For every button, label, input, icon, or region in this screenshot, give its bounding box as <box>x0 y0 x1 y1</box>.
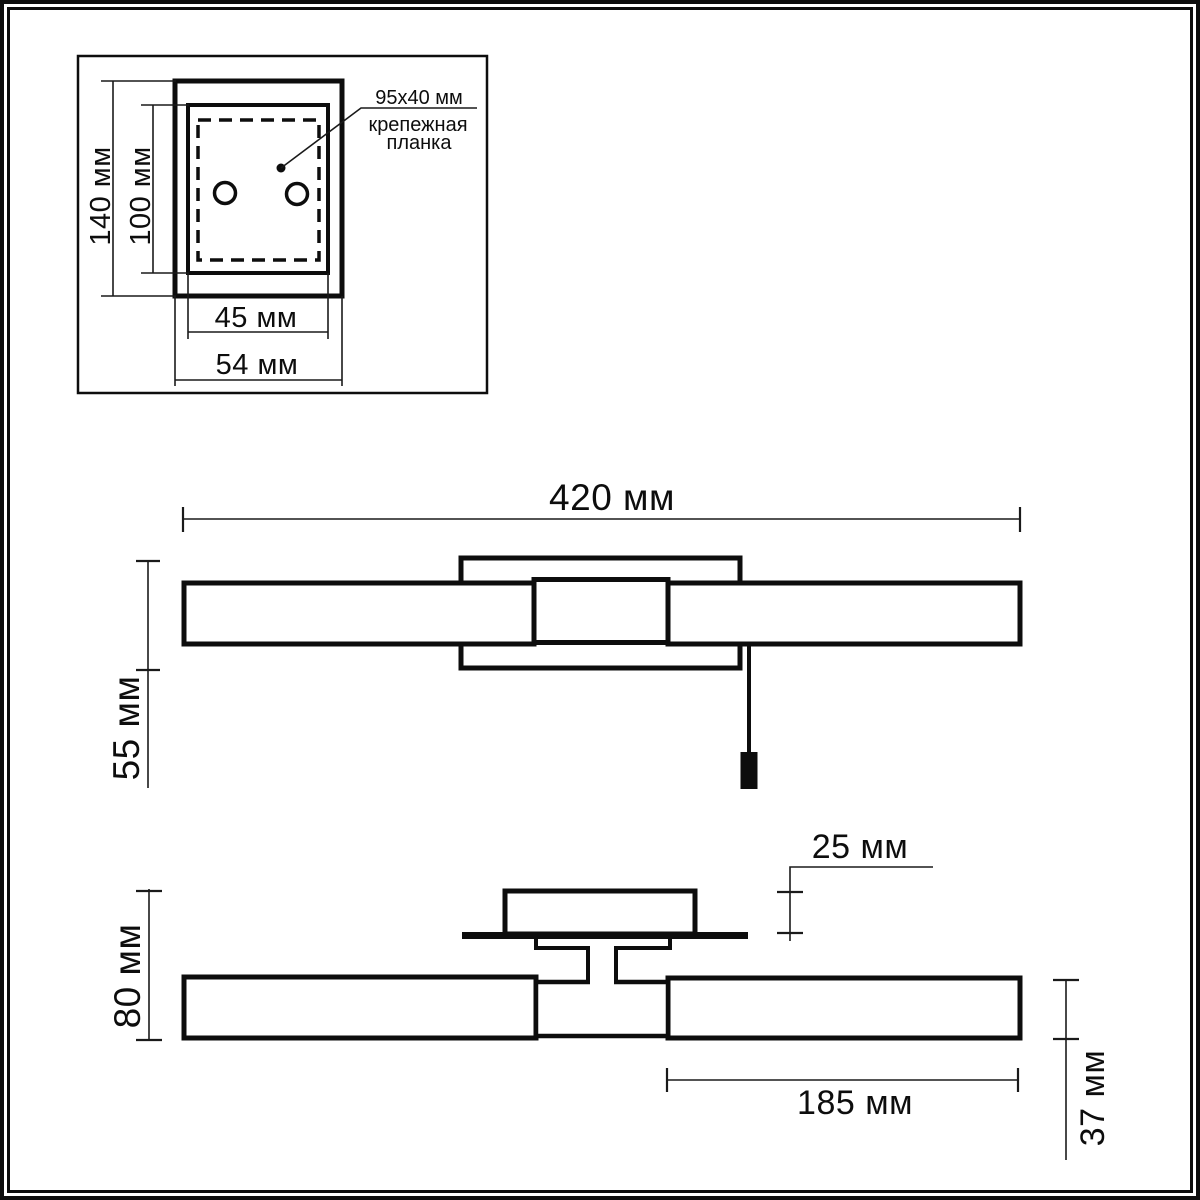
dim-label-45: 45 мм <box>215 302 298 334</box>
bracket-stem-right <box>616 935 670 982</box>
front-view: 420 мм 55 мм <box>106 477 1020 789</box>
drawing-canvas: 95x40 мм крепежная планка 140 мм 100 мм … <box>0 0 1200 1200</box>
callout-name-line2: планка <box>387 132 453 154</box>
dim-label-420: 420 мм <box>549 477 675 518</box>
stem-opening <box>590 976 614 986</box>
center-body-front <box>534 580 668 643</box>
dim-label-185: 185 мм <box>797 1084 913 1122</box>
mounting-box-top <box>505 891 695 934</box>
dimline-25 <box>790 867 933 941</box>
callout-size-label: 95x40 мм <box>375 87 463 109</box>
dim-label-54: 54 мм <box>216 349 299 381</box>
right-shade-top <box>668 978 1020 1038</box>
right-shade-front <box>668 583 1020 644</box>
dim-label-100: 100 мм <box>125 146 157 245</box>
technical-drawing: 95x40 мм крепежная планка 140 мм 100 мм … <box>0 0 1200 1200</box>
pull-cord-handle <box>741 752 758 789</box>
dim-label-55: 55 мм <box>106 676 147 781</box>
dim-label-25: 25 мм <box>812 828 909 866</box>
top-view: 80 мм 25 мм 185 мм 37 мм <box>107 828 1112 1160</box>
detail-view: 95x40 мм крепежная планка 140 мм 100 мм … <box>78 56 487 393</box>
center-body-top <box>536 982 668 1036</box>
screw-hole-right <box>287 184 308 205</box>
dim-label-37: 37 мм <box>1074 1050 1112 1147</box>
bracket-stem-left <box>536 935 588 982</box>
screw-hole-left <box>215 183 236 204</box>
left-shade-top <box>184 977 536 1038</box>
dim-label-140: 140 мм <box>85 146 117 245</box>
dim-label-80: 80 мм <box>107 924 148 1029</box>
left-shade-front <box>184 583 534 644</box>
